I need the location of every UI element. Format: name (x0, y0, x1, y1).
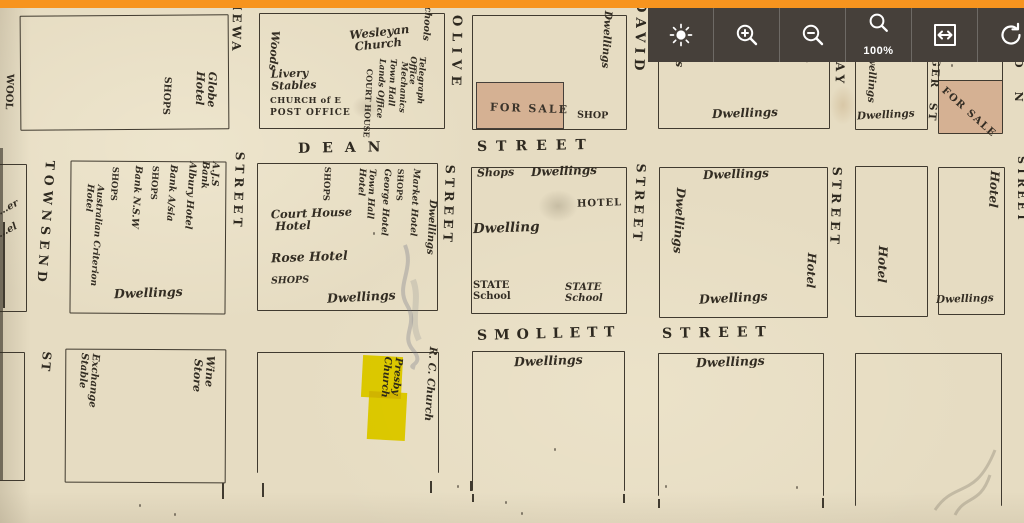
label-dwellings-court: Dwellings (327, 288, 396, 305)
street-label-right-edge-street: STREET (1015, 156, 1024, 224)
block-r2-far-east (855, 353, 1002, 506)
label-shops-court-3: SHOPS (395, 169, 405, 202)
label-for-sale-1: FOR SALE (490, 102, 569, 117)
zoom-out-icon (800, 22, 826, 48)
block-r2-center (472, 351, 625, 491)
sun-icon (668, 22, 694, 48)
paper-edge (0, 148, 3, 480)
label-state-school-2: STATE School (565, 283, 603, 305)
toolbar-button-rotate[interactable] (977, 8, 1024, 62)
label-dwellings-r1-bottom: Dwellings (699, 289, 768, 306)
top-accent-bar (0, 0, 1024, 8)
street-line-tick (262, 483, 264, 497)
label-shops-globe: SHOPS (160, 76, 172, 115)
paper-stain (830, 85, 856, 125)
street-line-tick (822, 498, 824, 508)
block-r1-hotel-west (855, 166, 928, 317)
label-wine-store: Wine Store (190, 355, 216, 393)
street-label-smollett: SMOLLETT (477, 325, 622, 344)
street-label-macaulay-partial: AY (833, 62, 846, 88)
label-shops-school-block: Shops (477, 166, 515, 179)
label-dwellings-r1-left: Dwellings (671, 187, 687, 254)
label-ajs-bank: A.J.S Bank (198, 161, 220, 190)
label-wool: WOOL (2, 74, 14, 110)
label-exchange-stable: Exchange Stable (75, 352, 100, 407)
label-globe-hotel: Globe Hotel (193, 71, 218, 107)
label-rose-hotel: Rose Hotel (271, 249, 348, 265)
street-line-tick (430, 481, 432, 493)
toolbar-button-fit-width[interactable] (911, 8, 977, 62)
label-presby-church: Presby Church (378, 356, 403, 399)
street-label-dean-street: STREET (477, 138, 595, 155)
label-livery-stables: Livery Stables (271, 67, 317, 92)
label-dwellings-r2-center: Dwellings (514, 353, 583, 369)
street-label-macaulay-street: STREET (828, 167, 844, 248)
label-court-house-hotel: Court House Hotel (271, 206, 353, 234)
street-line-tick (222, 483, 224, 499)
label-dwellings-r1-top: Dwellings (703, 167, 769, 182)
label-state-school-1: STATE School (473, 281, 511, 303)
label-shops-banks-2: SHOPS (107, 166, 119, 201)
map-canvas[interactable]: STANLEY ST DEAN STREET SMOLLETT STREET I… (0, 0, 1024, 523)
label-dwellings-school-block: Dwellings (531, 164, 597, 179)
search-highlight (367, 391, 407, 441)
label-shop: SHOP (577, 110, 609, 121)
street-label-dean: DEAN (298, 140, 393, 157)
label-dwellings-r0: Dwellings (712, 106, 778, 121)
label-hotel-east: Hotel (986, 170, 1001, 208)
label-dwellings-forsale: Dwellings (599, 10, 613, 68)
toolbar-button-zoom-level[interactable]: 100% (845, 8, 911, 62)
street-line-tick (623, 494, 625, 503)
block-r2-left-partial (0, 352, 25, 481)
street-line-tick (658, 499, 660, 508)
label-town-hall-hotel: Town Hall Hotel (354, 168, 376, 219)
street-label-olive-street: STREET (441, 165, 457, 246)
label-george-hotel: George Hotel (378, 168, 391, 236)
magnifier-icon (868, 12, 890, 38)
street-label-kiewa-partial: IEWA (229, 5, 243, 54)
label-dwellings-banks: Dwellings (114, 285, 183, 301)
street-label-townsend: TOWNSEND (35, 160, 57, 287)
viewer-toolbar: 100% (648, 8, 1024, 62)
label-hotel-r1-right: Hotel (804, 253, 818, 289)
street-label-david-street: STREET (630, 163, 648, 245)
label-dwellings-hotel-east: Dwellings (936, 293, 994, 306)
label-town-hall: Town Hall (385, 59, 397, 107)
zoom-level-value: 100% (846, 45, 911, 57)
toolbar-button-zoom-out[interactable] (779, 8, 845, 62)
street-line-tick (472, 494, 474, 502)
label-dwellings-r2-east: Dwellings (696, 354, 765, 370)
fit-width-icon (932, 22, 958, 48)
rotate-icon (998, 22, 1024, 48)
label-dwellings-court-v: Dwellings (423, 199, 437, 254)
street-line-tick (470, 481, 472, 491)
label-shops-banks-1: SHOPS (147, 165, 159, 200)
street-label-smollett-street: STREET (662, 325, 774, 342)
label-lands-office: Lands Office (374, 59, 386, 119)
street-label-olive: OLIVE (448, 15, 463, 92)
street-label-right-edge-partial: ON (1012, 58, 1024, 126)
label-telegraph-office: Telegraph Office (405, 56, 426, 104)
label-dwelling: Dwelling (473, 220, 540, 237)
label-shops-court-2: SHOPS (271, 275, 309, 287)
block-r2-east (658, 353, 824, 496)
street-label-townsend-st: ST (38, 351, 53, 374)
block-churches (257, 352, 439, 473)
map-viewer: STANLEY ST DEAN STREET SMOLLETT STREET I… (0, 0, 1024, 523)
label-post-office: POST OFFICE (270, 109, 351, 119)
street-label-kiewa-street: STREET (230, 152, 246, 231)
toolbar-button-zoom-in[interactable] (713, 8, 779, 62)
label-shops-court-1: SHOPS (320, 167, 331, 202)
label-hotel-school-block: HOTEL (577, 198, 623, 210)
street-label-david: DAVID (631, 0, 648, 75)
zoom-in-icon (734, 22, 760, 48)
label-woods: Woods (266, 30, 281, 71)
label-hotel-west: Hotel (875, 246, 889, 284)
toolbar-button-brightness[interactable] (648, 8, 713, 62)
label-church-of-e: CHURCH of E (270, 97, 341, 106)
